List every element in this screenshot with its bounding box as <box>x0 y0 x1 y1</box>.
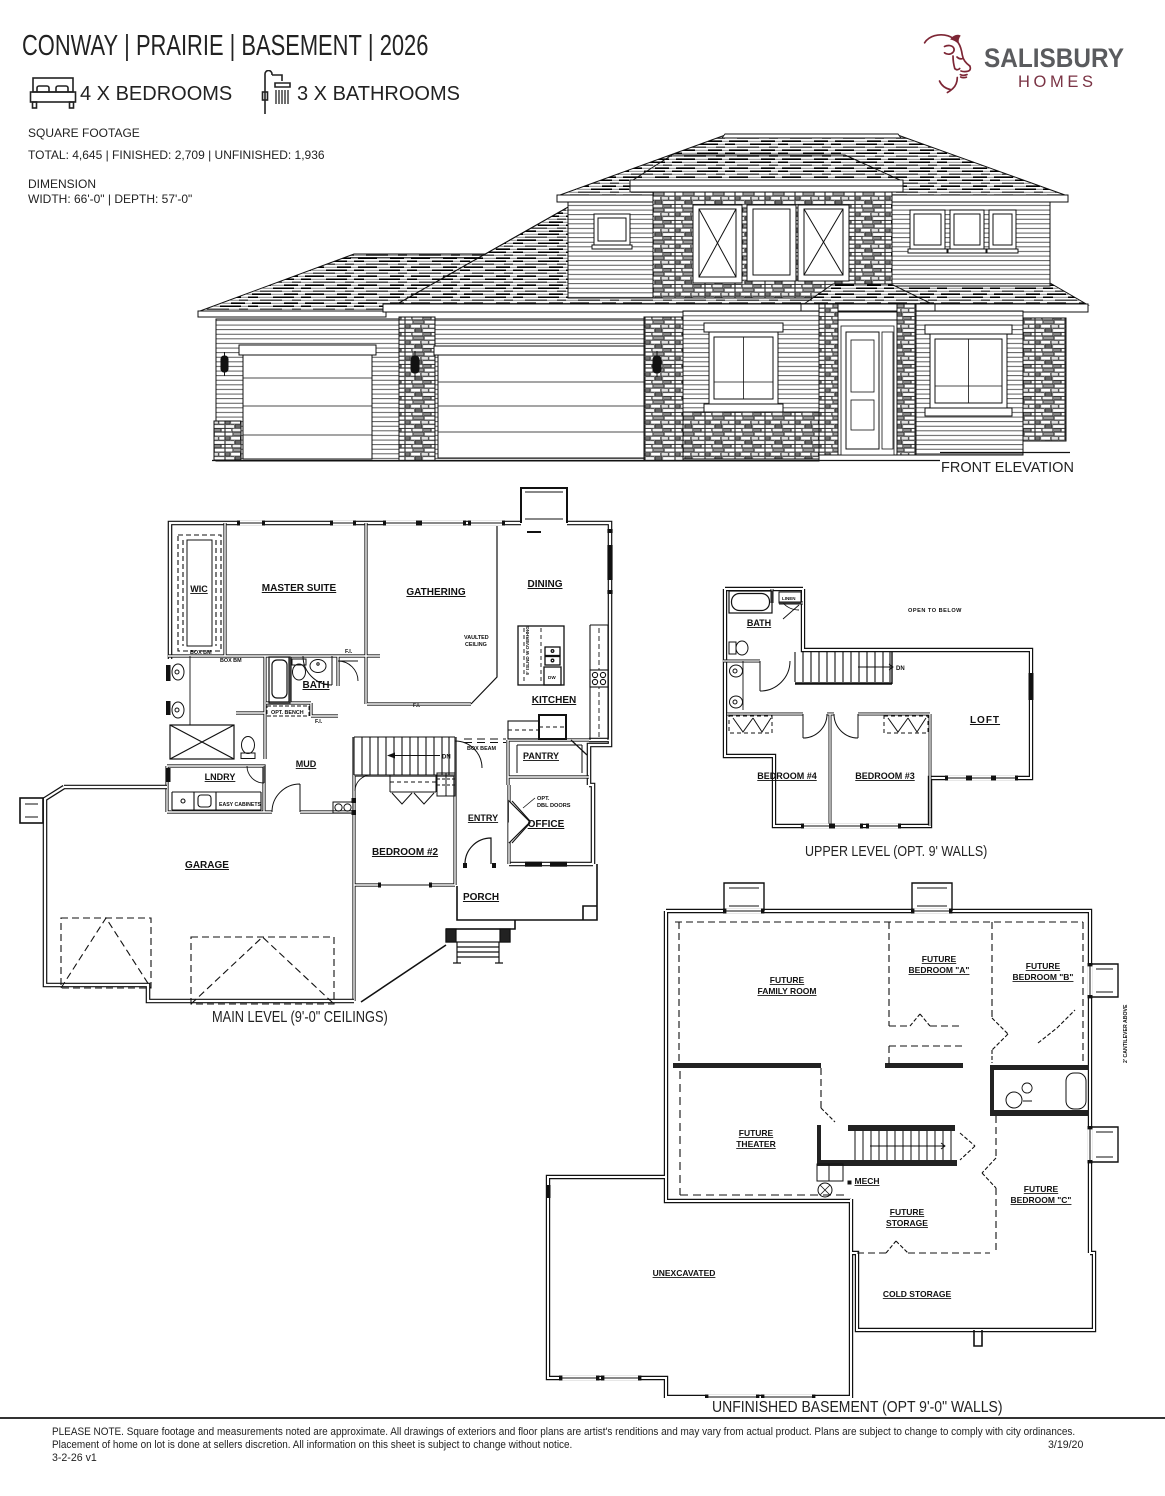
svg-text:F.I.: F.I. <box>413 703 421 709</box>
svg-text:FUTURE: FUTURE <box>770 975 805 985</box>
svg-text:OFFICE: OFFICE <box>528 819 565 830</box>
svg-text:OPT. BENCH: OPT. BENCH <box>271 710 304 716</box>
svg-text:VAULTED: VAULTED <box>464 635 489 641</box>
svg-text:CEILING: CEILING <box>465 642 487 648</box>
svg-text:DW: DW <box>548 675 556 680</box>
svg-text:HOMES: HOMES <box>1018 73 1093 91</box>
svg-text:UNEXCAVATED: UNEXCAVATED <box>653 1268 716 1278</box>
svg-text:MASTER SUITE: MASTER SUITE <box>262 583 337 594</box>
svg-text:STORAGE: STORAGE <box>886 1218 928 1228</box>
svg-text:OPT.: OPT. <box>537 796 550 802</box>
svg-text:PANTRY: PANTRY <box>523 751 559 761</box>
svg-text:ENTRY: ENTRY <box>468 813 498 823</box>
svg-text:F.I.: F.I. <box>315 719 323 725</box>
svg-text:FUTURE: FUTURE <box>922 954 957 964</box>
svg-text:THEATER: THEATER <box>736 1139 776 1149</box>
svg-text:BOX BM: BOX BM <box>220 658 242 664</box>
svg-text:KITCHEN: KITCHEN <box>532 695 576 706</box>
svg-text:2' CANTILEVER ABOVE: 2' CANTILEVER ABOVE <box>1123 1004 1129 1063</box>
svg-text:BATH: BATH <box>747 618 771 628</box>
svg-text:F.I.: F.I. <box>345 649 353 655</box>
svg-text:9' ISLND W OVERHNG: 9' ISLND W OVERHNG <box>525 626 530 675</box>
svg-text:FUTURE: FUTURE <box>739 1128 774 1138</box>
svg-text:GATHERING: GATHERING <box>406 587 465 598</box>
svg-text:OPEN TO BELOW: OPEN TO BELOW <box>908 608 962 614</box>
svg-text:BOX BM: BOX BM <box>190 650 212 656</box>
svg-text:BEDROOM "C": BEDROOM "C" <box>1011 1195 1072 1205</box>
svg-text:DN: DN <box>896 666 905 672</box>
svg-text:WIC: WIC <box>190 584 208 594</box>
svg-text:BOX BEAM: BOX BEAM <box>467 746 497 752</box>
svg-text:EASY CABINETS: EASY CABINETS <box>219 802 262 808</box>
svg-text:MECH: MECH <box>854 1176 879 1186</box>
svg-text:BEDROOM #3: BEDROOM #3 <box>855 771 915 781</box>
svg-text:FUTURE: FUTURE <box>890 1207 925 1217</box>
svg-text:DN: DN <box>442 755 451 761</box>
svg-text:COLD STORAGE: COLD STORAGE <box>883 1289 952 1299</box>
svg-text:SALISBURY: SALISBURY <box>984 43 1124 73</box>
svg-text:FAMILY ROOM: FAMILY ROOM <box>757 986 816 996</box>
svg-text:BEDROOM #2: BEDROOM #2 <box>372 847 439 858</box>
svg-text:DBL DOORS: DBL DOORS <box>537 803 571 809</box>
svg-text:BEDROOM "B": BEDROOM "B" <box>1013 972 1074 982</box>
svg-text:BATH: BATH <box>302 680 329 691</box>
svg-text:LINEN: LINEN <box>782 596 796 601</box>
svg-text:DINING: DINING <box>528 579 563 590</box>
svg-text:PORCH: PORCH <box>463 892 499 903</box>
svg-text:FUTURE: FUTURE <box>1026 961 1061 971</box>
svg-text:BEDROOM "A": BEDROOM "A" <box>909 965 970 975</box>
svg-text:FUTURE: FUTURE <box>1024 1184 1059 1194</box>
svg-text:BEDROOM #4: BEDROOM #4 <box>757 771 817 781</box>
svg-text:LNDRY: LNDRY <box>205 772 236 782</box>
svg-text:LOFT: LOFT <box>970 715 1000 726</box>
svg-text:GARAGE: GARAGE <box>185 860 229 871</box>
svg-text:MUD: MUD <box>296 759 317 769</box>
